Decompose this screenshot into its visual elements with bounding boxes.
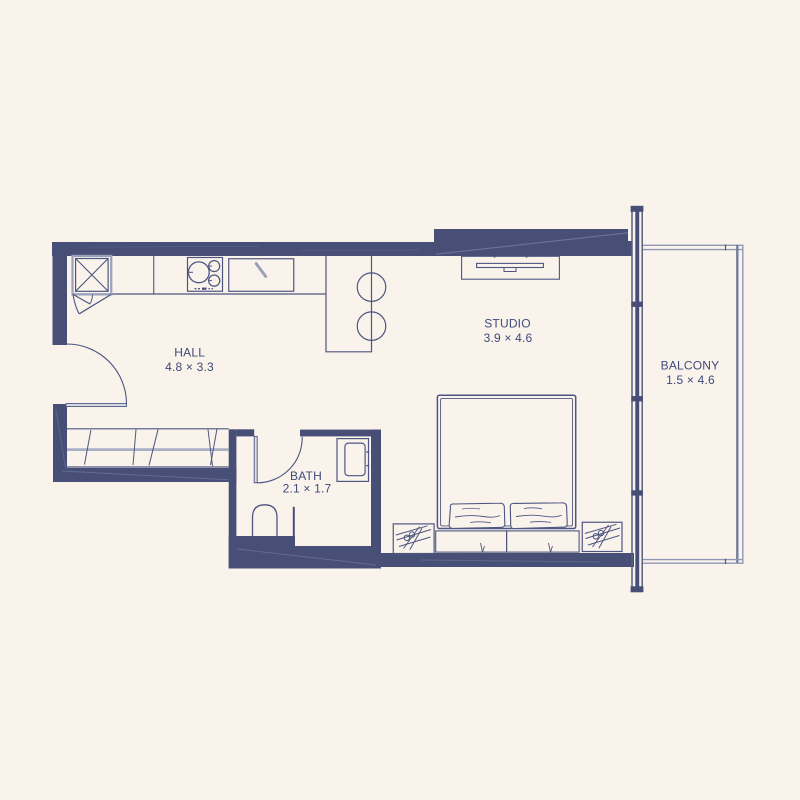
svg-text:HALL: HALL <box>174 345 205 359</box>
svg-text:BALCONY: BALCONY <box>661 359 720 373</box>
svg-text:2.1 × 1.7: 2.1 × 1.7 <box>283 481 332 495</box>
svg-text:STUDIO: STUDIO <box>484 316 531 330</box>
svg-text:4.8 × 3.3: 4.8 × 3.3 <box>165 360 214 374</box>
svg-text:1.5 × 4.6: 1.5 × 4.6 <box>666 373 715 387</box>
svg-text:3.9 × 4.6: 3.9 × 4.6 <box>484 331 533 345</box>
